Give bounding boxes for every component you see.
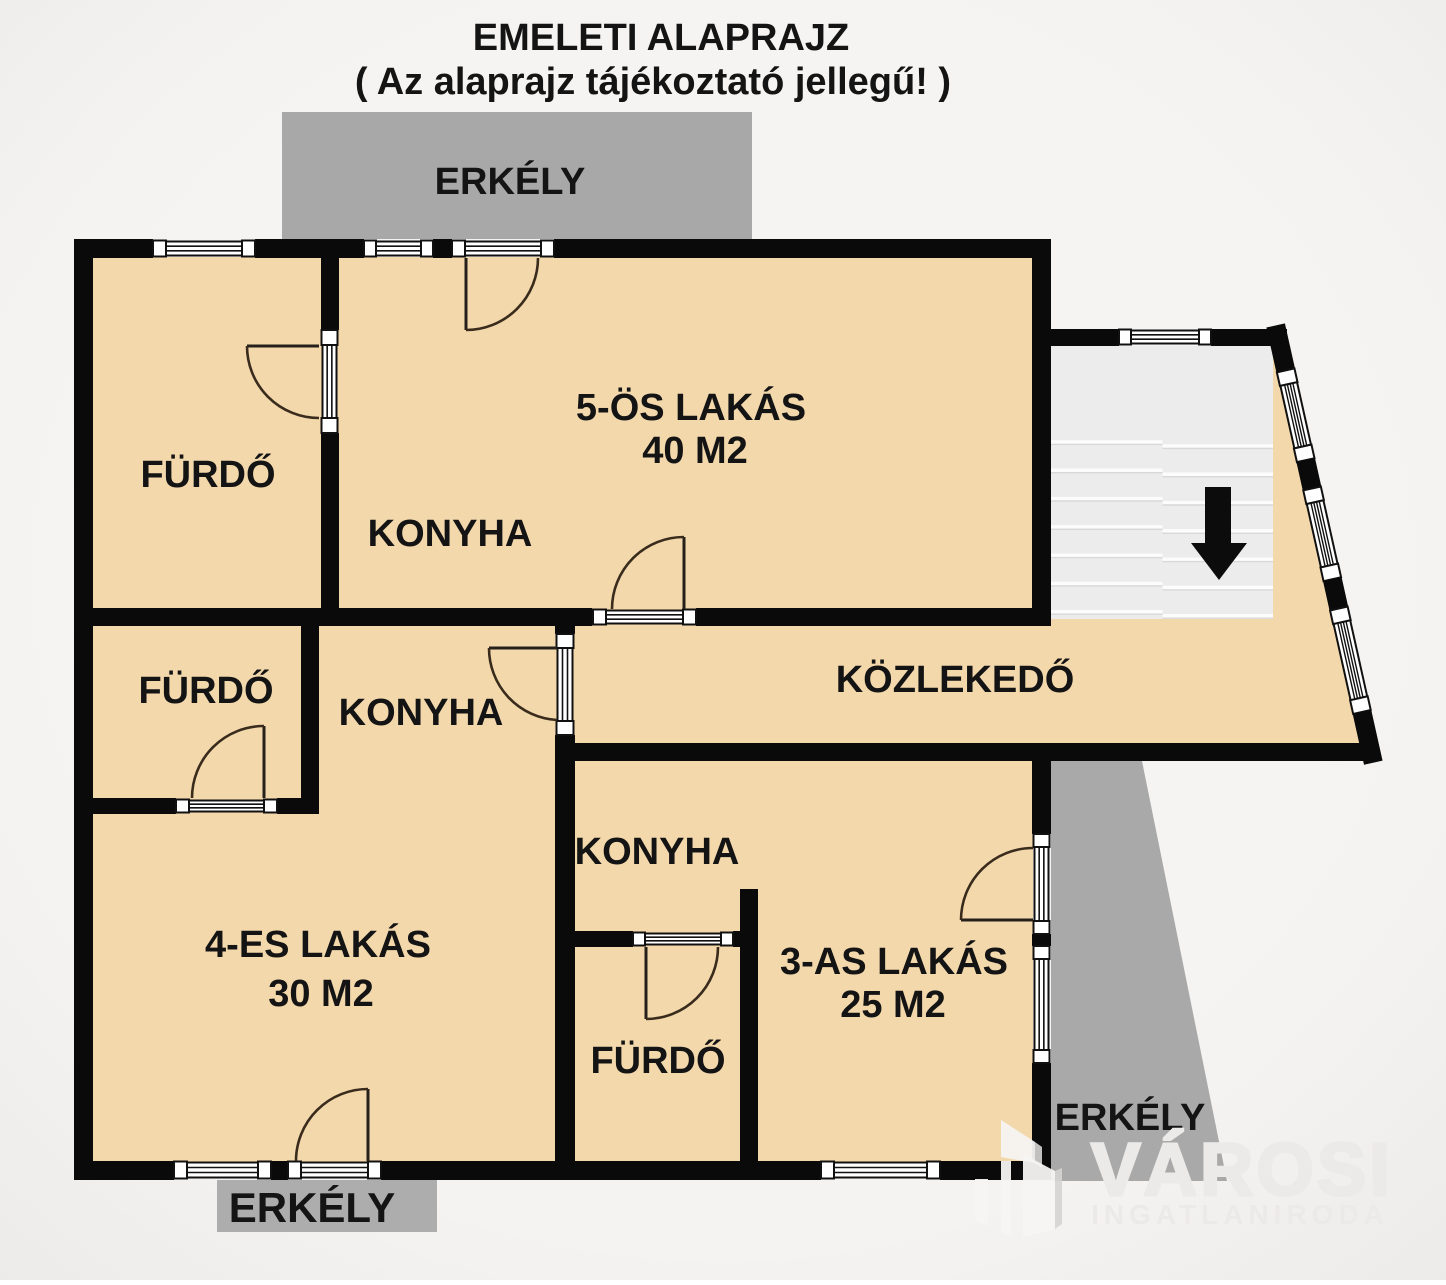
svg-text:ERKÉLY: ERKÉLY bbox=[435, 159, 586, 203]
svg-text:FÜRDŐ: FÜRDŐ bbox=[590, 1038, 725, 1082]
svg-text:3-AS LAKÁS: 3-AS LAKÁS bbox=[780, 939, 1008, 983]
svg-text:FÜRDŐ: FÜRDŐ bbox=[140, 452, 275, 496]
svg-text:25 M2: 25 M2 bbox=[840, 984, 946, 1026]
svg-text:40 M2: 40 M2 bbox=[642, 430, 748, 472]
svg-text:INGATLANIRODA: INGATLANIRODA bbox=[1091, 1199, 1389, 1230]
svg-text:FÜRDŐ: FÜRDŐ bbox=[138, 668, 273, 712]
svg-text:KONYHA: KONYHA bbox=[339, 692, 504, 734]
svg-text:KONYHA: KONYHA bbox=[368, 513, 533, 555]
svg-text:30 M2: 30 M2 bbox=[268, 973, 374, 1015]
svg-text:4-ES LAKÁS: 4-ES LAKÁS bbox=[205, 922, 431, 966]
svg-text:KÖZLEKEDŐ: KÖZLEKEDŐ bbox=[836, 657, 1075, 701]
svg-text:ERKÉLY: ERKÉLY bbox=[229, 1184, 396, 1231]
svg-text:KONYHA: KONYHA bbox=[575, 831, 740, 873]
svg-text:EMELETI ALAPRAJZ: EMELETI ALAPRAJZ bbox=[473, 17, 850, 59]
svg-text:5-ÖS LAKÁS: 5-ÖS LAKÁS bbox=[576, 385, 806, 429]
svg-text:( Az alaprajz tájékoztató jell: ( Az alaprajz tájékoztató jellegű! ) bbox=[355, 61, 951, 103]
